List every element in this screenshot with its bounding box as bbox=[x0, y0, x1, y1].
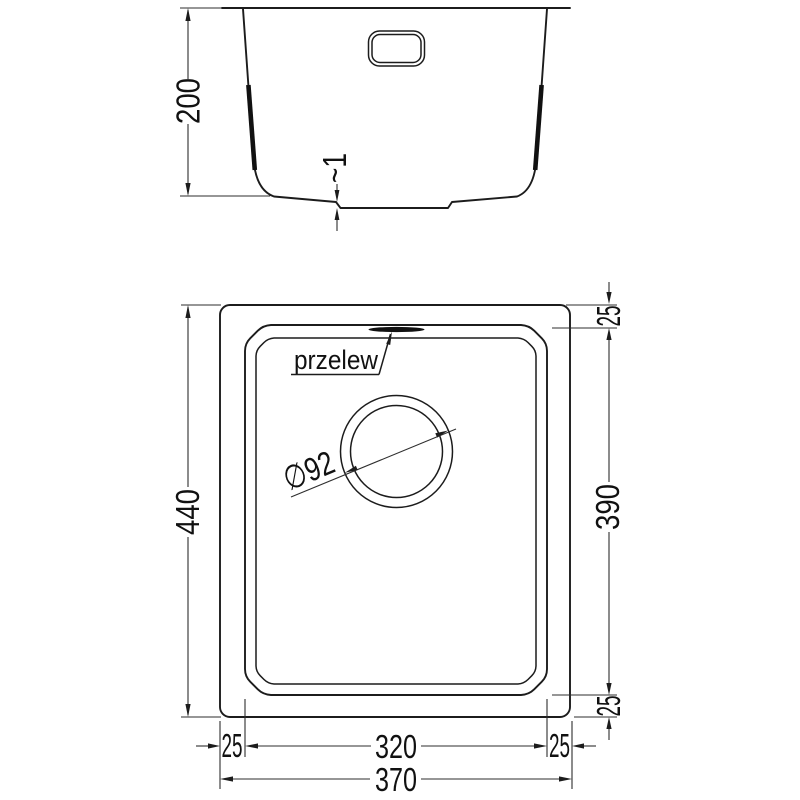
arrowhead-up bbox=[185, 305, 190, 318]
overflow-opening-outer bbox=[369, 31, 425, 66]
arrowhead-down bbox=[185, 183, 190, 196]
bottom-step-dimension-label: ~1 bbox=[316, 153, 353, 183]
overall-length-dimension: 440 bbox=[169, 305, 221, 717]
overflow-label: przelew bbox=[294, 345, 378, 375]
arrowhead-up bbox=[185, 8, 190, 21]
rim-offset-top-label: 25 bbox=[590, 306, 627, 327]
overflow-opening-inner bbox=[372, 35, 421, 63]
technical-drawing-page: 200 ~1 przelew bbox=[0, 0, 800, 800]
arrowhead-right bbox=[534, 743, 547, 748]
drain-inner-circle bbox=[351, 406, 443, 498]
arrowhead-up bbox=[335, 208, 340, 220]
plan-bowl-outer bbox=[245, 325, 547, 695]
rim-offset-left-label: 25 bbox=[222, 727, 243, 764]
plan-view: przelew ∅92 440 bbox=[169, 282, 627, 798]
arrowhead-left bbox=[245, 743, 258, 748]
overall-width-label: 370 bbox=[375, 761, 417, 798]
plan-bowl-inner bbox=[256, 338, 536, 684]
arrowhead-up bbox=[606, 717, 611, 729]
bowl-width-label: 320 bbox=[375, 728, 417, 765]
drain-outer-circle bbox=[341, 396, 453, 508]
rim-offset-right-label: 25 bbox=[549, 727, 570, 764]
overall-length-label: 440 bbox=[169, 489, 206, 535]
side-tub-profile bbox=[243, 9, 547, 208]
rim-offset-bottom-label: 25 bbox=[590, 696, 627, 717]
arrowhead-down bbox=[335, 190, 340, 202]
sink-technical-drawing: 200 ~1 przelew bbox=[0, 0, 800, 800]
arrowhead-left bbox=[572, 743, 584, 748]
arrowhead-right bbox=[559, 776, 572, 781]
bottom-dimension-rows: 25 320 25 370 bbox=[196, 699, 596, 798]
arrowhead-down bbox=[606, 683, 611, 695]
right-dimension-column: 25 390 25 bbox=[552, 282, 627, 740]
right-clip-mark bbox=[535, 85, 541, 170]
plan-outer-edge bbox=[220, 305, 570, 717]
drain-diameter-label: ∅92 bbox=[277, 443, 339, 497]
bowl-length-label: 390 bbox=[589, 484, 626, 530]
side-view: 200 ~1 bbox=[170, 8, 571, 231]
arrowhead-right bbox=[208, 743, 220, 748]
left-clip-mark bbox=[248, 85, 254, 170]
arrowhead-up bbox=[606, 328, 611, 340]
depth-dimension-label: 200 bbox=[170, 78, 207, 124]
arrowhead-down bbox=[606, 292, 611, 304]
overflow-slot bbox=[369, 327, 425, 332]
bottom-step-dimension: ~1 bbox=[316, 153, 353, 231]
arrowhead-down bbox=[185, 704, 190, 717]
arrowhead-left bbox=[220, 776, 233, 781]
